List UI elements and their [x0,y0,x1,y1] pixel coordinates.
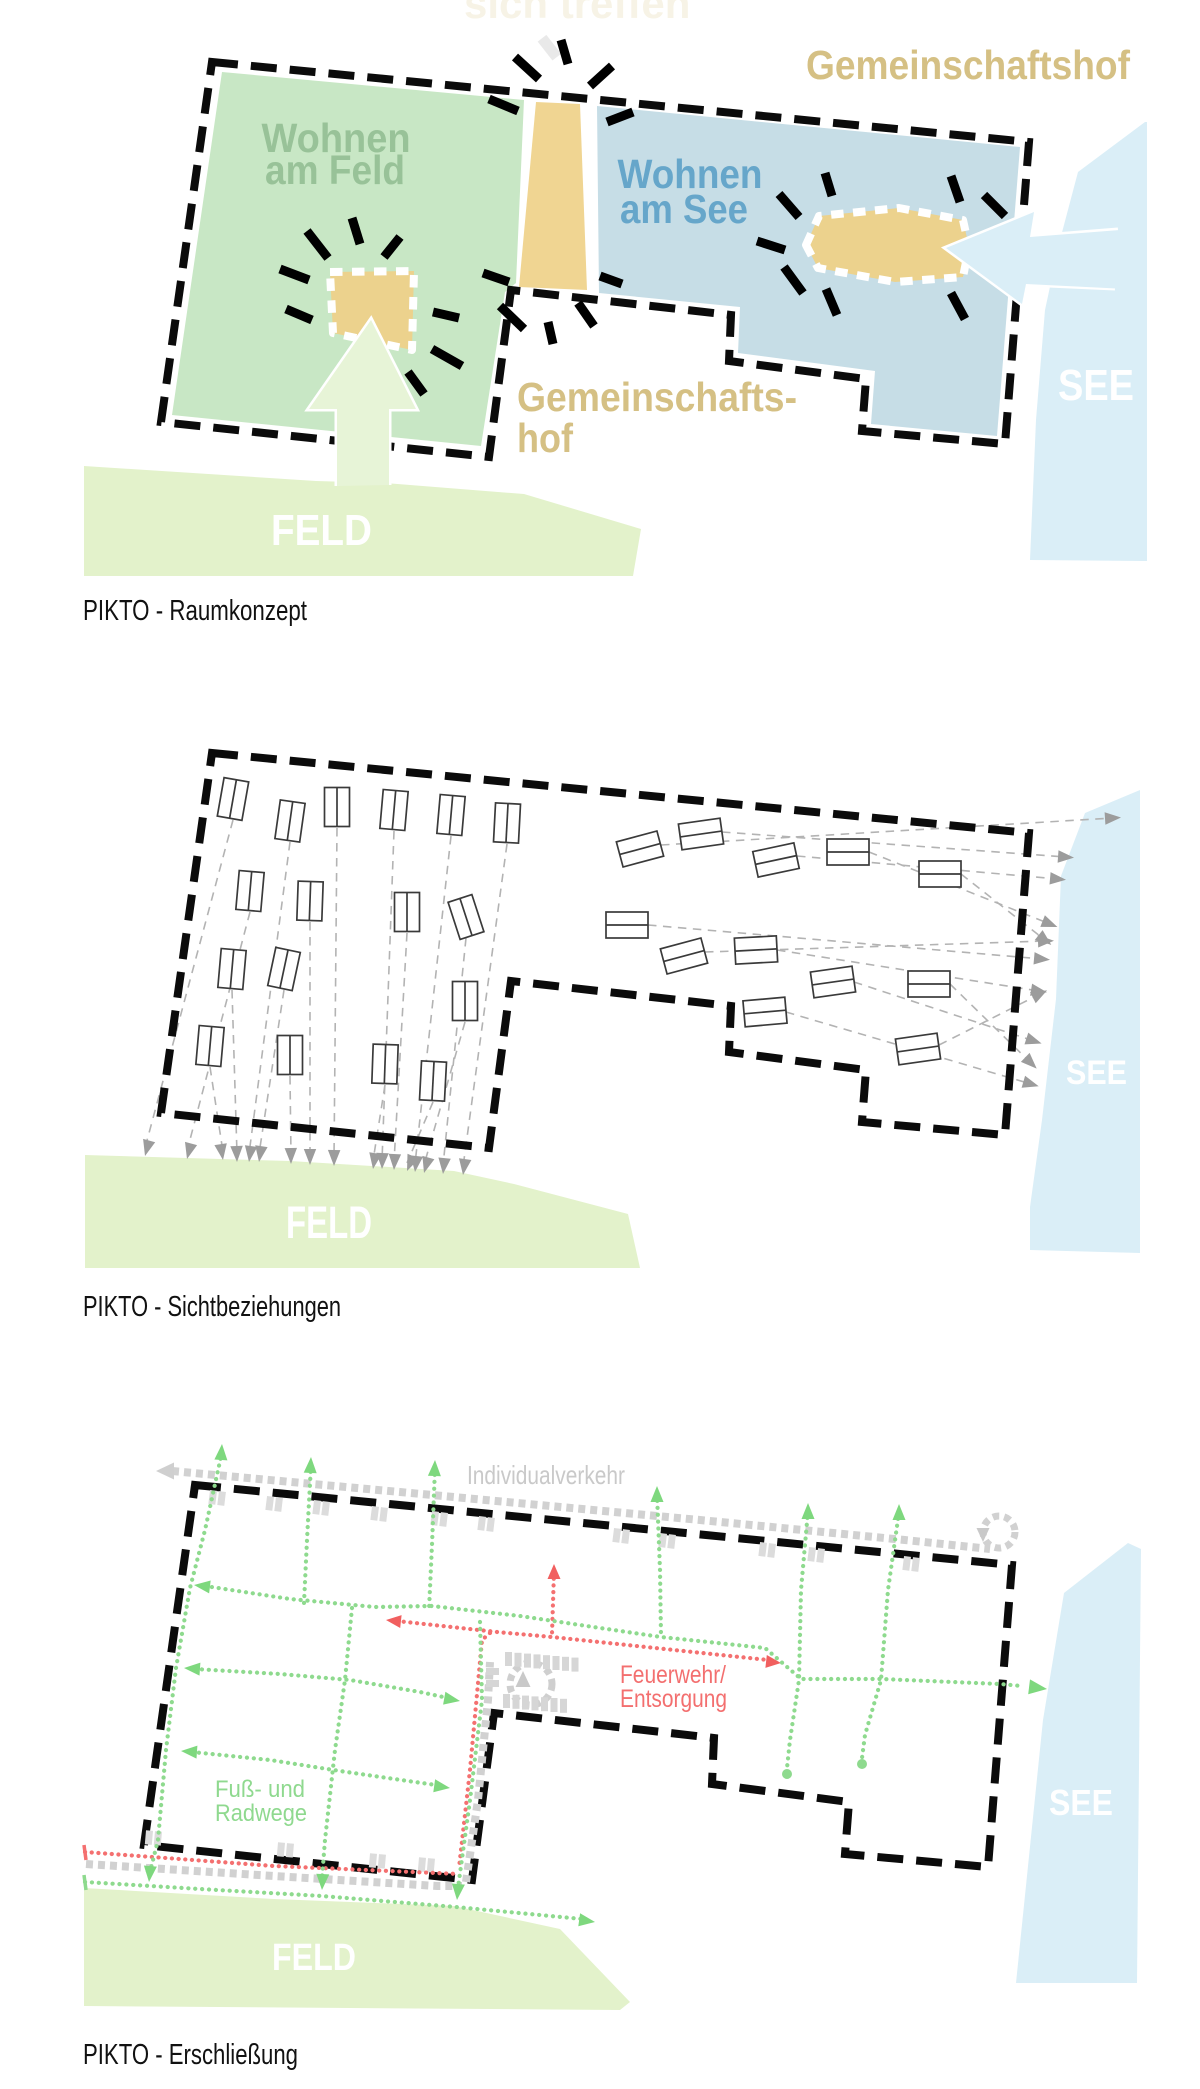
svg-text:SEE: SEE [1049,1782,1113,1823]
svg-text:am Feld: am Feld [265,147,405,193]
svg-text:Gemeinschaftshof: Gemeinschaftshof [806,42,1130,88]
svg-text:hof: hof [517,415,573,461]
svg-text:am See: am See [620,186,748,232]
svg-text:Fuß- und: Fuß- und [215,1776,305,1803]
svg-text:FELD: FELD [286,1197,372,1248]
svg-text:FELD: FELD [272,1937,356,1979]
svg-text:SEE: SEE [1066,1054,1127,1092]
svg-text:PIKTO - Raumkonzept: PIKTO - Raumkonzept [83,595,307,627]
svg-text:FELD: FELD [271,506,372,555]
svg-text:sich treffen: sich treffen [464,0,690,27]
svg-text:Gemeinschafts-: Gemeinschafts- [517,374,797,420]
svg-text:PIKTO - Erschließung: PIKTO - Erschließung [83,2039,298,2071]
svg-text:Entsorgung: Entsorgung [620,1685,727,1713]
svg-text:SEE: SEE [1058,361,1134,410]
svg-text:PIKTO - Sichtbeziehungen: PIKTO - Sichtbeziehungen [83,1291,341,1323]
svg-text:Individualverkehr: Individualverkehr [467,1460,625,1490]
svg-text:Radwege: Radwege [215,1800,307,1827]
